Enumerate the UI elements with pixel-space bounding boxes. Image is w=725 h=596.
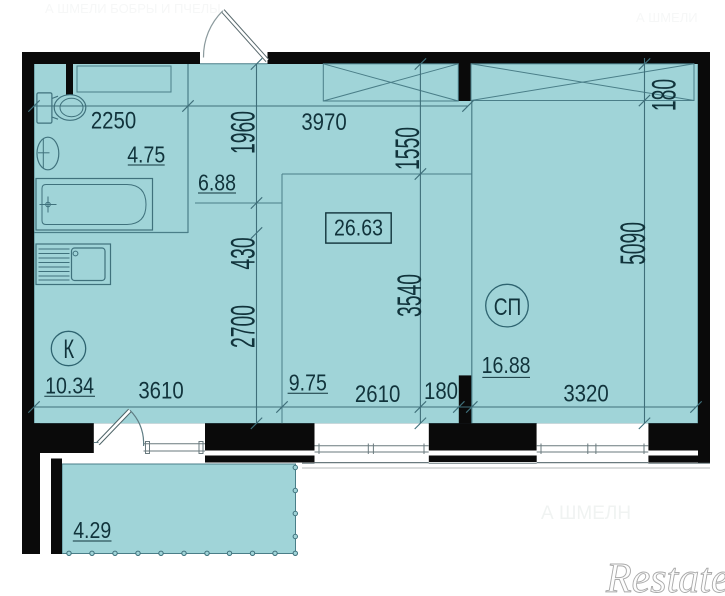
- svg-text:А ШМЕЛИ БОБРЫ И ПЧЕЛЫ: А ШМЕЛИ БОБРЫ И ПЧЕЛЫ: [45, 1, 221, 16]
- svg-text:6.88: 6.88: [198, 170, 236, 196]
- svg-text:180: 180: [645, 79, 683, 111]
- svg-text:2250: 2250: [91, 107, 136, 134]
- svg-text:А ШМЕЛИ: А ШМЕЛИ: [636, 10, 698, 25]
- svg-text:430: 430: [224, 237, 262, 269]
- svg-text:3970: 3970: [301, 108, 346, 135]
- svg-text:4.29: 4.29: [73, 518, 111, 544]
- svg-text:3610: 3610: [138, 377, 183, 404]
- svg-text:3540: 3540: [390, 274, 428, 317]
- svg-text:СП: СП: [494, 292, 522, 320]
- svg-text:А ШМЕЛН: А ШМЕЛН: [541, 503, 631, 524]
- svg-text:1960: 1960: [224, 111, 262, 154]
- svg-text:3320: 3320: [563, 380, 608, 407]
- svg-text:К: К: [63, 334, 74, 364]
- svg-text:10.34: 10.34: [45, 373, 94, 399]
- svg-text:2610: 2610: [355, 380, 400, 407]
- svg-text:180: 180: [424, 377, 458, 404]
- svg-text:Restate: Restate: [605, 556, 725, 596]
- svg-text:2700: 2700: [224, 305, 262, 348]
- svg-text:9.75: 9.75: [289, 370, 327, 396]
- svg-text:4.75: 4.75: [127, 142, 165, 168]
- svg-text:5090: 5090: [613, 222, 653, 265]
- svg-text:16.88: 16.88: [482, 353, 531, 379]
- svg-text:1550: 1550: [388, 127, 426, 170]
- svg-text:26.63: 26.63: [334, 215, 383, 241]
